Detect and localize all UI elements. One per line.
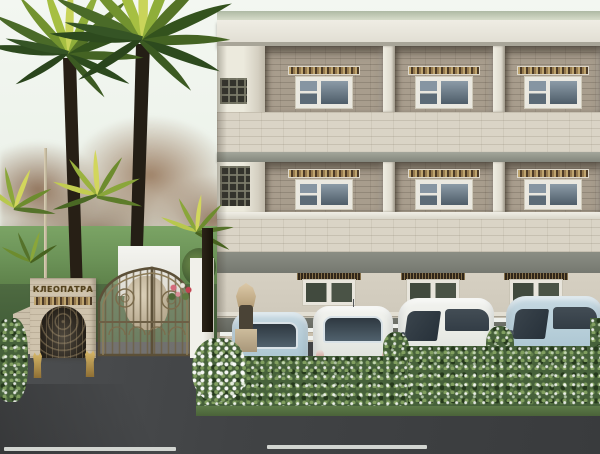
dark-lintel (297, 273, 361, 280)
palm-trunk-foreground (202, 228, 213, 332)
white-ledge (217, 212, 600, 219)
windshield (404, 311, 441, 341)
parapet-band (217, 219, 600, 252)
cat-statue (33, 352, 42, 378)
statue-head (236, 283, 256, 307)
facade-pillar (493, 46, 505, 112)
dark-lintel (504, 273, 568, 280)
palm-shrub (1, 231, 58, 264)
mosaic-band (34, 297, 92, 305)
window-bay (395, 162, 493, 212)
facade-pillar (493, 162, 505, 212)
roof-slab (217, 20, 600, 46)
palm-shrub (0, 166, 56, 217)
statue-body (239, 305, 253, 331)
palm-shrub (160, 194, 233, 252)
driveway-gate (95, 260, 195, 357)
gate-leaf-left (99, 268, 152, 355)
roof-coping (217, 11, 600, 20)
mosaic-lintel (517, 169, 589, 178)
window-bay (265, 46, 383, 112)
lane-marking (4, 447, 176, 451)
flowering-bush (0, 318, 28, 402)
window (525, 77, 581, 108)
grey-ledge (217, 152, 600, 162)
antenna (353, 299, 354, 307)
ground-window (303, 280, 355, 305)
third-floor (217, 46, 600, 112)
lane-marking (267, 445, 427, 449)
cat-statue (85, 350, 95, 377)
mosaic-lintel (288, 66, 360, 75)
mosaic-lintel (408, 66, 480, 75)
gate-sign: КЛЕОПАТРА (32, 283, 94, 295)
window-bay (505, 162, 600, 212)
palm-shrub (52, 150, 143, 212)
pedestrian-gate-arch: КЛЕОПАТРА (30, 278, 96, 358)
grey-string-course (217, 252, 600, 273)
mosaic-lintel (408, 169, 480, 178)
rear-window (323, 316, 383, 343)
facade-pillar (383, 46, 395, 112)
mosaic-lintel (288, 169, 360, 178)
pedestrian-gate-door (40, 306, 86, 358)
window-bay (395, 46, 493, 112)
dark-lintel (401, 273, 465, 280)
window-bay (265, 162, 383, 212)
window-bay (505, 46, 600, 112)
window (296, 180, 352, 209)
gate-flowers (166, 280, 196, 302)
sphinx-statue (233, 283, 259, 352)
mosaic-lintel (517, 66, 589, 75)
architectural-rendering: КЛЕОПАТРА (0, 0, 600, 454)
window (416, 180, 472, 209)
facade-pillar (383, 162, 395, 212)
parapet-band (217, 112, 600, 152)
second-floor (217, 162, 600, 212)
windshield (512, 309, 549, 339)
window (416, 77, 472, 108)
hedge-grass-base (196, 406, 600, 416)
window (296, 77, 352, 108)
flowering-bush (192, 338, 246, 402)
side-windows (445, 309, 489, 331)
window (525, 180, 581, 209)
